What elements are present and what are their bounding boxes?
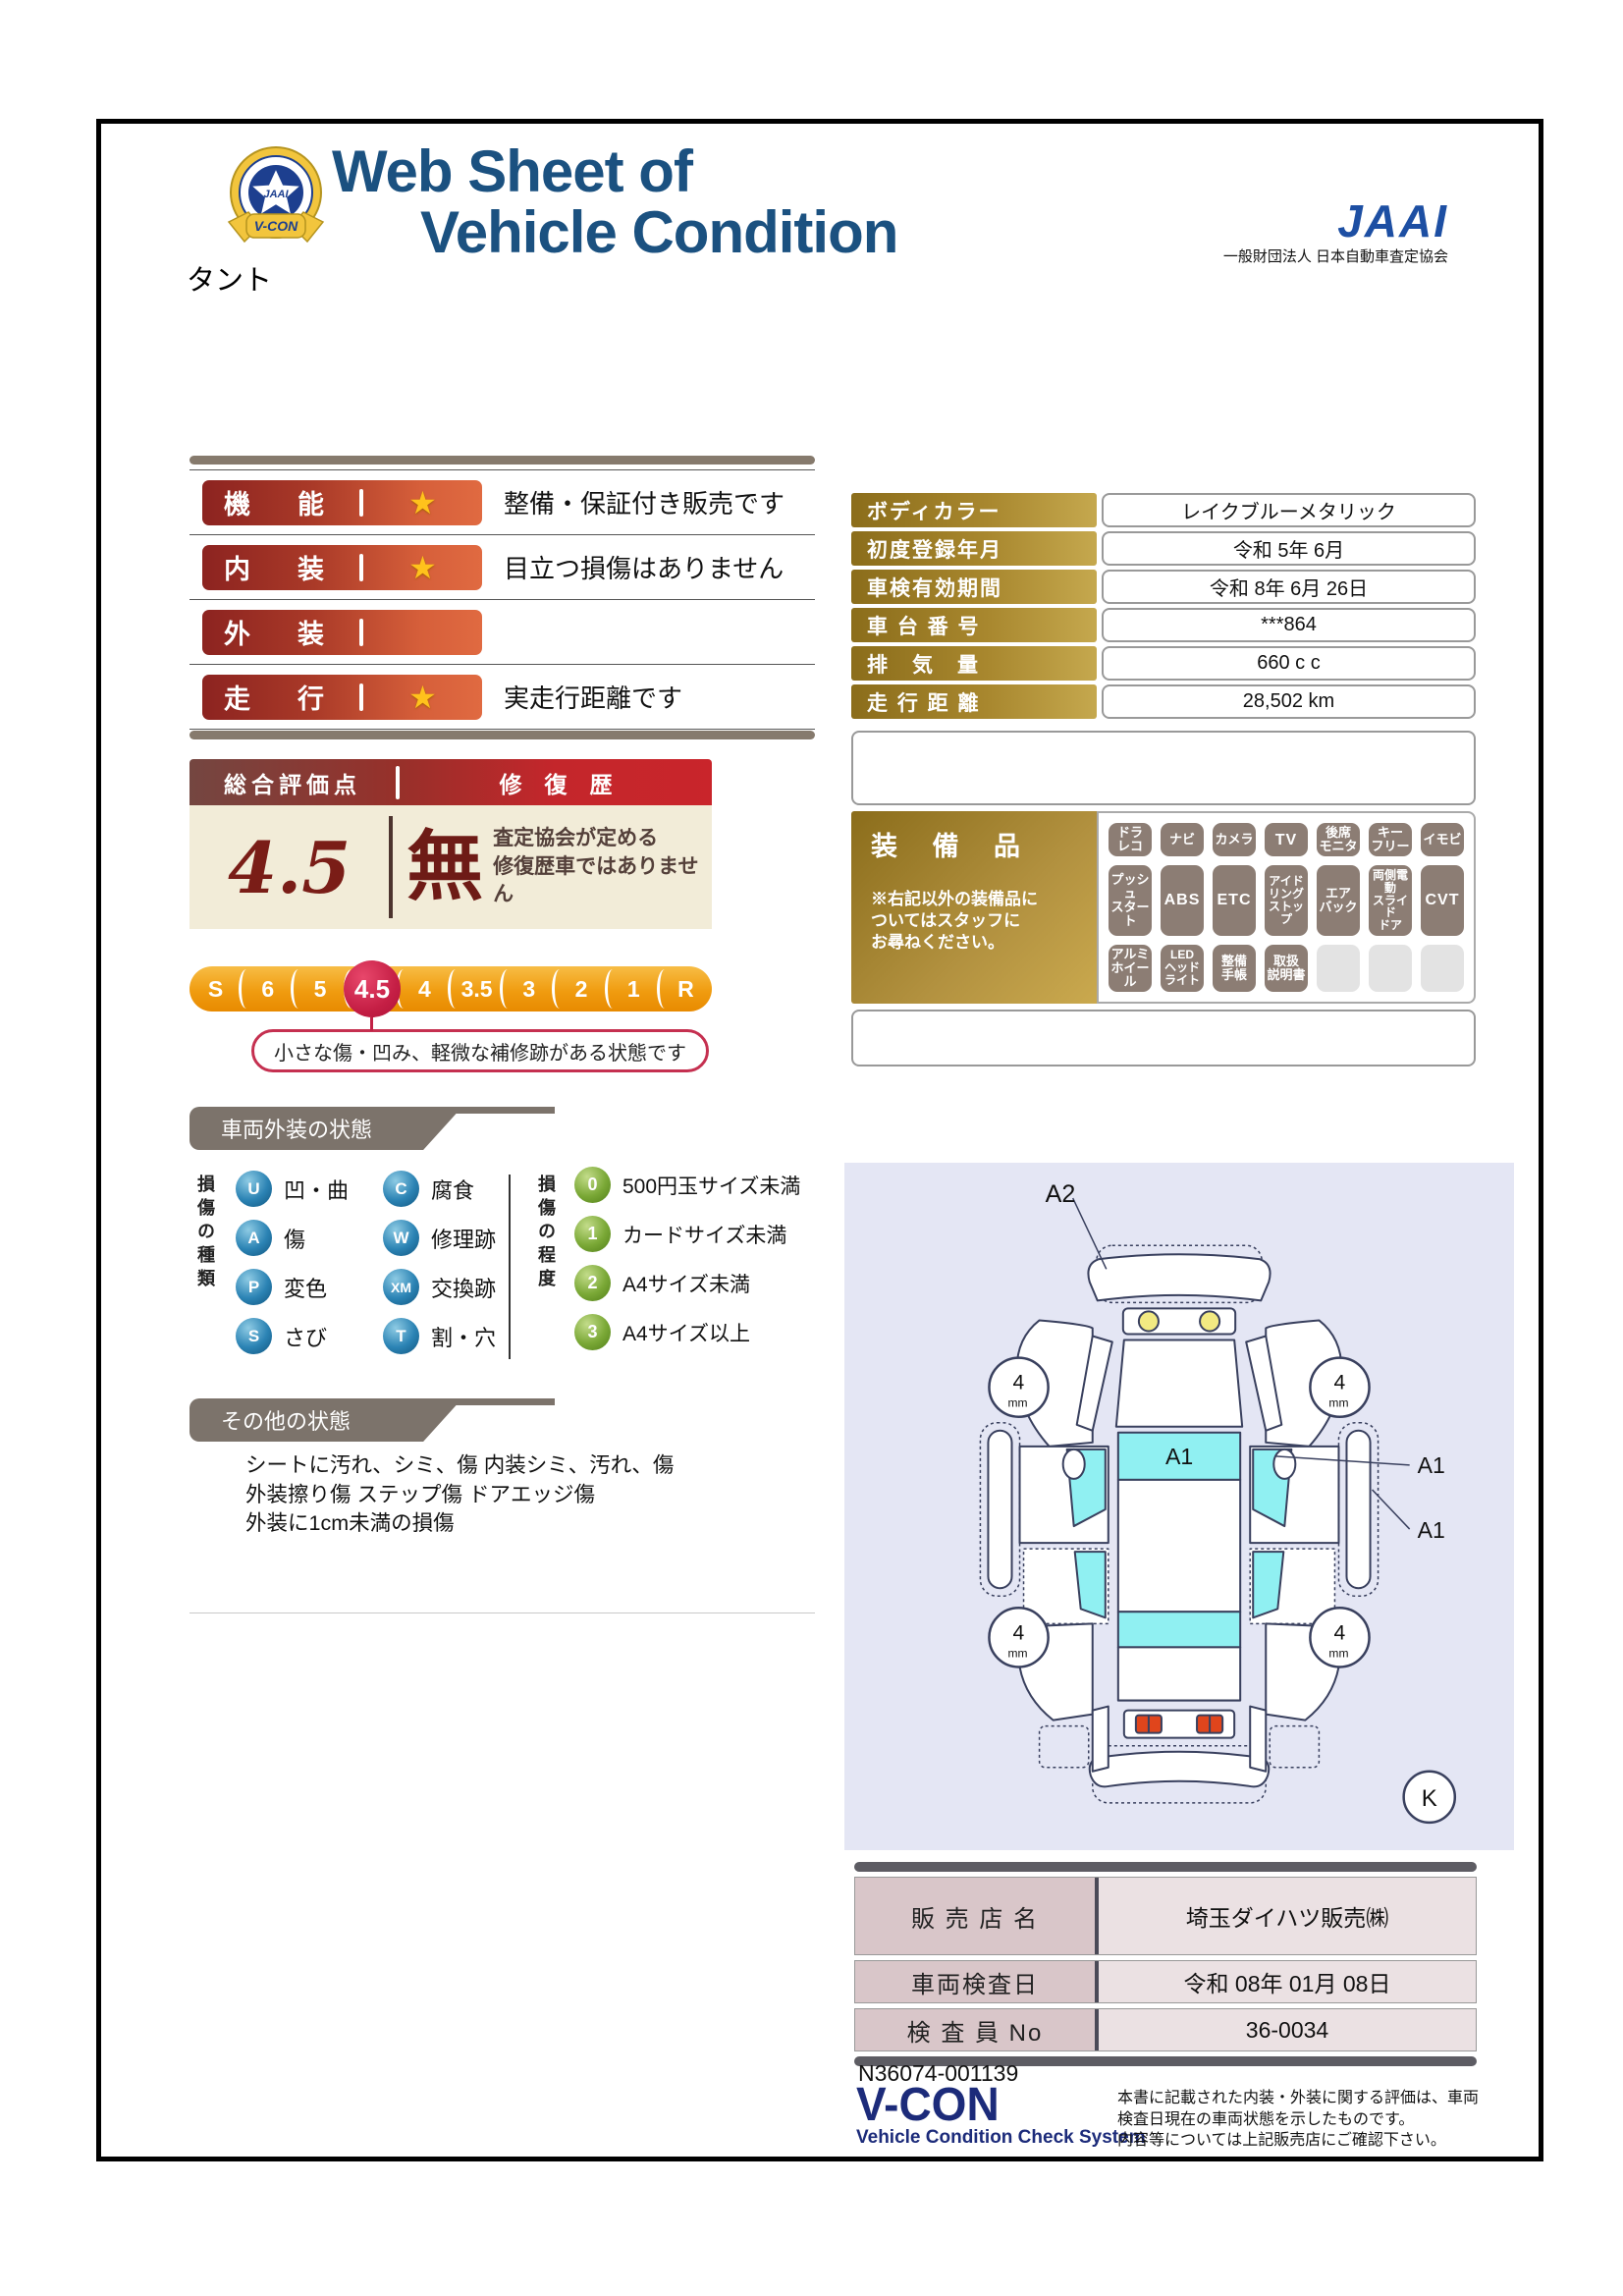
vcon-badge-logo: JAAI V-CON [221, 143, 331, 266]
scale-item: 5 [294, 966, 346, 1011]
body-divider [389, 816, 393, 918]
detail-label: 走 行 距 離 [851, 684, 1097, 719]
equipment-badge-grid: ドラ レコ ナビ カメラ TV 後席 モニタ キー フリー イモビ プッシュ ス… [1097, 811, 1476, 1004]
empty-remarks-box [851, 731, 1476, 805]
repair-note-line2: 修復歴車ではありません [493, 855, 698, 905]
rating-label: 内装 [224, 548, 353, 586]
vehicle-name: タント [187, 257, 272, 299]
dealer-value: 埼玉ダイハツ販売㈱ [1099, 1878, 1476, 1954]
detail-value: 660 c c [1102, 646, 1476, 681]
damage-code-icon: XM [383, 1269, 419, 1305]
legend-label: 交換跡 [431, 1272, 496, 1303]
damage-code-icon: W [383, 1220, 419, 1256]
equipment-badge-empty [1317, 945, 1360, 992]
jaai-logo: JAAI [1154, 198, 1448, 244]
repair-history-mark: 無 [406, 829, 483, 905]
jaai-logo-block: JAAI 一般財団法人 日本自動車査定協会 [1154, 198, 1448, 266]
rating-table: 機能 ★ 整備・保証付き販売です 内装 ★ 目立つ損傷はありません 外装 [189, 469, 815, 730]
legend-item: U凹・曲 [236, 1171, 383, 1207]
equipment-badge: プッシュ スタート [1109, 865, 1152, 935]
equipment-badge: アイド リング ストップ [1265, 865, 1308, 935]
inspector-no-value: 36-0034 [1099, 2009, 1476, 2050]
equipment-badge: 両側電動 スライド ドア [1369, 865, 1412, 935]
damage-degree-legend: 0500円玉サイズ未満 1カードサイズ未満 2A4サイズ未満 3A4サイズ以上 [574, 1167, 800, 1350]
equipment-badge: アルミ ホイール [1109, 945, 1152, 992]
dealer-info-table: 販 売 店 名 埼玉ダイハツ販売㈱ 車両検査日 令和 08年 01月 08日 検… [854, 1862, 1477, 2066]
rating-row-kinou: 機能 ★ 整備・保証付き販売です [189, 469, 815, 534]
damage-degree-axis: 損傷の程度 [533, 1175, 559, 1292]
detail-value: 令和 5年 6月 [1102, 531, 1476, 566]
star-icon: ★ [363, 682, 482, 713]
degree-code-icon: 3 [574, 1314, 611, 1350]
scale-item: 4 [399, 966, 451, 1011]
overall-score-value: 4.5 [189, 826, 389, 909]
disclaimer-line: 内容等については上記販売店にご確認下さい。 [1117, 2130, 1486, 2152]
damage-code-icon: P [236, 1269, 272, 1305]
rear-bumper [1090, 1752, 1270, 1787]
headlight-right [1200, 1311, 1219, 1331]
equipment-note: ※右記以外の装備品に ついてはスタッフに お尋ねください。 [871, 889, 1097, 954]
scale-item: 3 [503, 966, 555, 1011]
scale-item: R [660, 966, 712, 1011]
damage-label-a1-side-upper: A1 [1418, 1452, 1445, 1478]
damage-code-icon: A [236, 1220, 272, 1256]
scale-item: 6 [242, 966, 294, 1011]
svg-text:V-CON: V-CON [254, 218, 298, 234]
overall-score-header: 総合評価点 修 復 歴 [189, 759, 712, 805]
empty-notes-box [851, 1010, 1476, 1066]
rating-row-soukou: 走行 ★ 実走行距離です [189, 664, 815, 729]
equipment-badge-empty [1369, 945, 1412, 992]
front-bumper [1088, 1254, 1270, 1300]
damage-code-icon: S [236, 1318, 272, 1354]
condition-line: 外装に1cm未満の損傷 [245, 1509, 674, 1539]
vcon-logo-subtitle: Vehicle Condition Check System [856, 2127, 1146, 2149]
rating-label: 外装 [224, 613, 353, 651]
table-row: 車両検査日 令和 08年 01月 08日 [854, 1960, 1477, 2003]
scale-item: 2 [555, 966, 607, 1011]
legend-label: カードサイズ未満 [622, 1220, 786, 1249]
equipment-badge: 取扱 説明書 [1265, 945, 1308, 992]
rating-description: 目立つ損傷はありません [504, 549, 784, 585]
equipment-header-panel: 装 備 品 ※右記以外の装備品に ついてはスタッフに お尋ねください。 [851, 811, 1097, 1004]
damage-type-axis: 損傷の種類 [192, 1175, 218, 1292]
legend-label: さび [284, 1321, 327, 1352]
table-row: 排 気 量 660 c c [851, 646, 1476, 681]
windshield [1116, 1340, 1242, 1427]
detail-label: 車 台 番 号 [851, 608, 1097, 642]
section-rule [189, 1613, 815, 1613]
damage-code-icon: C [383, 1171, 419, 1207]
legend-divider [509, 1175, 511, 1359]
damage-code-icon: U [236, 1171, 272, 1207]
equipment-title: 装 備 品 [871, 825, 1097, 863]
score-callout: 小さな傷・凹み、軽微な補修跡がある状態です [251, 1029, 709, 1072]
table-row: 走 行 距 離 28,502 km [851, 684, 1476, 719]
equipment-badge: ドラ レコ [1109, 823, 1152, 856]
repair-history-title: 修 復 歴 [400, 766, 712, 799]
legend-label: 腐食 [431, 1174, 474, 1205]
equipment-badge-empty [1421, 945, 1464, 992]
equipment-badge: LED ヘッド ライト [1161, 945, 1204, 992]
degree-code-icon: 2 [574, 1265, 611, 1301]
sheet-title-line2: Vehicle Condition [420, 198, 897, 266]
detail-label: ボディカラー [851, 493, 1097, 527]
legend-item: 1カードサイズ未満 [574, 1216, 800, 1252]
rating-label: 機能 [224, 483, 353, 521]
other-condition-text: シートに汚れ、シミ、傷 内装シミ、汚れ、傷 外装擦り傷 ステップ傷 ドアエッジ傷… [245, 1451, 674, 1539]
legend-label: 500円玉サイズ未満 [622, 1171, 800, 1200]
score-scale: S 6 5 4.5 4 3.5 3 2 1 R [189, 966, 712, 1011]
overall-score-box: 総合評価点 修 復 歴 4.5 無 査定協会が定める 修復歴車ではありません [189, 759, 712, 929]
table-row: 検 査 員 No 36-0034 [854, 2008, 1477, 2051]
disclaimer-text: 本書に記載された内装・外装に関する評価は、車両 検査日現在の車両状態を示したもの… [1117, 2088, 1486, 2152]
detail-value: 28,502 km [1102, 684, 1476, 719]
tread-depth-unit: mm [1008, 1396, 1028, 1410]
equipment-badge: 後席 モニタ [1317, 823, 1360, 856]
legend-item: 2A4サイズ未満 [574, 1265, 800, 1301]
sheet-title-line1: Web Sheet of [332, 137, 692, 205]
side-sill [988, 1431, 1011, 1588]
table-row: 車 台 番 号 ***864 [851, 608, 1476, 642]
equipment-badge: キー フリー [1369, 823, 1412, 856]
repair-history-note: 査定協会が定める 修復歴車ではありません [493, 825, 712, 908]
detail-label: 初度登録年月 [851, 531, 1097, 566]
scale-item: 1 [608, 966, 660, 1011]
side-mirror [1063, 1449, 1085, 1479]
equipment-badge: CVT [1421, 865, 1464, 935]
rating-row-naisou: 内装 ★ 目立つ損傷はありません [189, 534, 815, 599]
detail-value: 令和 8年 6月 26日 [1102, 570, 1476, 604]
legend-item: W修理跡 [383, 1220, 550, 1256]
equipment-badge: 整備 手帳 [1213, 945, 1256, 992]
bar-divider [359, 619, 363, 646]
legend-label: 変色 [284, 1272, 327, 1303]
detail-value: レイクブルーメタリック [1102, 493, 1476, 527]
rating-bar: 走行 ★ [202, 675, 482, 720]
tread-depth-value: 4 [1333, 1621, 1345, 1644]
legend-label: 凹・曲 [284, 1174, 349, 1205]
repair-note-line1: 査定協会が定める [493, 827, 658, 849]
roof-rear-glass [1118, 1612, 1240, 1647]
detail-label: 排 気 量 [851, 646, 1097, 681]
damage-label-a1-side-lower: A1 [1418, 1517, 1445, 1543]
roof-panel [1118, 1480, 1240, 1612]
legend-item: 0500円玉サイズ未満 [574, 1167, 800, 1203]
car-damage-diagram: A2 A1 A1 A1 K 4 mm 4 mm 4 mm 4 mm [844, 1163, 1514, 1855]
damage-label-a1-roof: A1 [1165, 1444, 1193, 1469]
legend-label: A4サイズ以上 [622, 1318, 750, 1347]
equipment-badge: カメラ [1213, 823, 1256, 856]
svg-text:JAAI: JAAI [263, 189, 289, 200]
overall-score-body: 4.5 無 査定協会が定める 修復歴車ではありません [189, 805, 712, 929]
headlight-left [1139, 1311, 1159, 1331]
rating-description: 整備・保証付き販売です [504, 484, 784, 520]
disclaimer-line: 検査日現在の車両状態を示したものです。 [1117, 2109, 1486, 2131]
selected-score-marker: 4.5 [344, 960, 401, 1017]
rating-bar: 機能 ★ [202, 480, 482, 525]
condition-line: シートに汚れ、シミ、傷 内装シミ、汚れ、傷 [245, 1451, 674, 1481]
table-row: 販 売 店 名 埼玉ダイハツ販売㈱ [854, 1877, 1477, 1955]
rating-bar: 内装 ★ [202, 545, 482, 590]
disclaimer-line: 本書に記載された内装・外装に関する評価は、車両 [1117, 2088, 1486, 2109]
table-row: ボディカラー レイクブルーメタリック [851, 493, 1476, 527]
table-row: 車検有効期間 令和 8年 6月 26日 [851, 570, 1476, 604]
legend-item: 3A4サイズ以上 [574, 1314, 800, 1350]
c-pillar [1093, 1707, 1109, 1772]
rear-window [1118, 1647, 1240, 1700]
damage-type-legend: U凹・曲 C腐食 A傷 W修理跡 P変色 XM交換跡 Sさび T割・穴 [236, 1171, 550, 1354]
divider-bar-mid [189, 731, 815, 739]
degree-code-icon: 1 [574, 1216, 611, 1252]
tread-depth-unit: mm [1008, 1646, 1028, 1660]
dealer-label: 販 売 店 名 [855, 1878, 1095, 1954]
scale-item: S [189, 966, 242, 1011]
tread-depth-value: 4 [1333, 1372, 1345, 1394]
legend-label: 修理跡 [431, 1223, 496, 1254]
k-marker-label: K [1422, 1785, 1437, 1812]
equipment-badge: ナビ [1161, 823, 1204, 856]
detail-label: 車検有効期間 [851, 570, 1097, 604]
legend-item: A傷 [236, 1220, 383, 1256]
table-top-bar [854, 1862, 1477, 1872]
equipment-badge: TV [1265, 823, 1308, 856]
tread-depth-unit: mm [1328, 1396, 1348, 1410]
table-row: 初度登録年月 令和 5年 6月 [851, 531, 1476, 566]
rating-row-gaisou: 外装 [189, 599, 815, 664]
equipment-badge: ABS [1161, 865, 1204, 935]
vehicle-details-table: ボディカラー レイクブルーメタリック 初度登録年月 令和 5年 6月 車検有効期… [851, 493, 1476, 723]
rating-label: 走行 [224, 678, 353, 716]
overall-score-title: 総合評価点 [189, 766, 396, 799]
equipment-badge: イモビ [1421, 823, 1464, 856]
degree-code-icon: 0 [574, 1167, 611, 1203]
legend-label: A4サイズ未満 [622, 1269, 750, 1298]
vehicle-condition-sheet: JAAI V-CON Web Sheet of Vehicle Conditio… [0, 0, 1623, 2296]
detail-value: ***864 [1102, 608, 1476, 642]
divider-bar-top [189, 456, 815, 465]
tread-depth-value: 4 [1013, 1621, 1025, 1644]
inspection-date-value: 令和 08年 01月 08日 [1099, 1961, 1476, 2002]
scale-item: 3.5 [451, 966, 503, 1011]
rating-description: 実走行距離です [504, 679, 682, 715]
legend-label: 傷 [284, 1223, 305, 1254]
vcon-logo: V-CON [856, 2080, 1000, 2127]
jaai-organization: 一般財団法人 日本自動車査定協会 [1154, 246, 1448, 266]
legend-item: P変色 [236, 1269, 383, 1305]
legend-item: Sさび [236, 1318, 383, 1354]
inspection-date-label: 車両検査日 [855, 1961, 1095, 2002]
damage-label-a2: A2 [1046, 1180, 1076, 1208]
inspector-no-label: 検 査 員 No [855, 2009, 1095, 2050]
rating-bar: 外装 [202, 610, 482, 655]
equipment-section: 装 備 品 ※右記以外の装備品に ついてはスタッフに お尋ねください。 ドラ レ… [851, 811, 1476, 1004]
legend-item: XM交換跡 [383, 1269, 550, 1305]
star-icon: ★ [363, 487, 482, 519]
tread-depth-unit: mm [1328, 1646, 1348, 1660]
marker-tail [370, 1017, 373, 1031]
star-icon: ★ [363, 552, 482, 583]
legend-item: C腐食 [383, 1171, 550, 1207]
equipment-badge: エア バック [1317, 865, 1360, 935]
condition-line: 外装擦り傷 ステップ傷 ドアエッジ傷 [245, 1481, 674, 1510]
legend-label: 割・穴 [431, 1321, 496, 1352]
equipment-badge: ETC [1213, 865, 1256, 935]
tread-depth-value: 4 [1013, 1372, 1025, 1394]
legend-item: T割・穴 [383, 1318, 550, 1354]
damage-code-icon: T [383, 1318, 419, 1354]
